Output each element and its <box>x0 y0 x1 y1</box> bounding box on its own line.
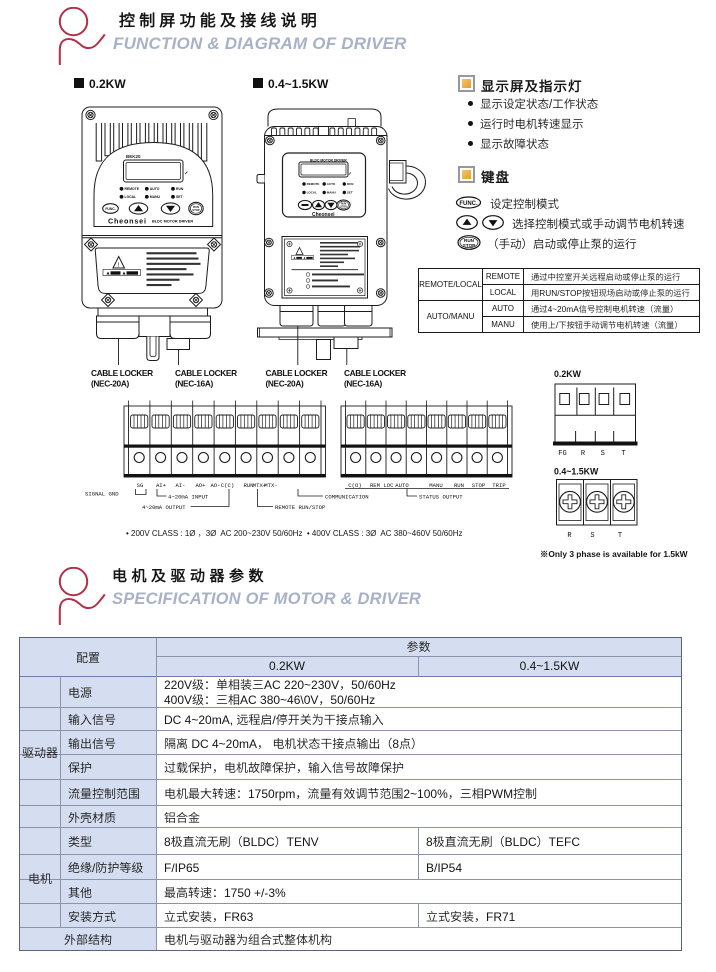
svg-text:CABLE LOCKER: CABLE LOCKER <box>344 368 406 378</box>
svg-text:AUTO: AUTO <box>150 187 160 191</box>
svg-text:MTX-: MTX- <box>264 482 277 489</box>
svg-text:CABLE LOCKER: CABLE LOCKER <box>91 368 153 378</box>
svg-text:LOCAL: LOCAL <box>307 191 317 195</box>
svg-text:AUTO: AUTO <box>395 482 409 489</box>
svg-text:R: R <box>567 532 572 540</box>
svg-text:CABLE LOCKER: CABLE LOCKER <box>266 368 328 378</box>
svg-text:STOP: STOP <box>192 208 200 212</box>
svg-text:SIGNAL GND: SIGNAL GND <box>85 491 119 498</box>
svg-text:(NEC-16A): (NEC-16A) <box>175 379 213 389</box>
svg-text:LOC: LOC <box>383 482 394 489</box>
svg-text:AUTO: AUTO <box>327 182 336 186</box>
svg-text:AI+: AI+ <box>156 482 167 489</box>
svg-text:FG: FG <box>558 450 566 458</box>
svg-text:STOP: STOP <box>340 205 347 208</box>
svg-text:RUN: RUN <box>176 187 184 191</box>
svg-text:REMOTE: REMOTE <box>307 182 320 186</box>
svg-text:COMMUNICATION: COMMUNICATION <box>325 493 369 500</box>
svg-text:SET: SET <box>176 195 184 199</box>
svg-text:C(O): C(O) <box>348 482 361 489</box>
svg-text:BLDC MOTOR DRIVER: BLDC MOTOR DRIVER <box>152 220 193 224</box>
svg-text:AO-: AO- <box>210 482 220 489</box>
svg-text:AO+: AO+ <box>195 482 206 489</box>
svg-text:AI-: AI- <box>175 482 185 489</box>
svg-text:STATUS OUTPUT: STATUS OUTPUT <box>419 493 463 500</box>
svg-text:MANU: MANU <box>327 191 336 195</box>
svg-text:4~20mA INPUT: 4~20mA INPUT <box>168 493 209 500</box>
svg-text:REMOTE: REMOTE <box>125 187 140 191</box>
svg-text:TRIP: TRIP <box>492 482 506 489</box>
svg-text:REM: REM <box>370 482 380 489</box>
svg-text:0.2KW: 0.2KW <box>554 369 582 379</box>
svg-text:4~20mA OUTPUT: 4~20mA OUTPUT <box>142 504 186 511</box>
svg-text:FUNC.: FUNC. <box>105 207 115 211</box>
svg-text:FUNC.: FUNC. <box>459 201 478 207</box>
svg-text:T: T <box>621 450 625 458</box>
svg-text:S: S <box>601 450 605 458</box>
svg-text:MANU: MANU <box>429 482 442 489</box>
svg-text:SG: SG <box>137 482 144 489</box>
svg-text:(NEC-20A): (NEC-20A) <box>266 379 304 389</box>
svg-text:S: S <box>590 532 594 540</box>
svg-text:REMOTE RUN/STOP: REMOTE RUN/STOP <box>275 504 326 511</box>
svg-text:0.4~1.5KW: 0.4~1.5KW <box>554 467 599 477</box>
svg-text:R: R <box>581 450 586 458</box>
svg-text:STOP: STOP <box>463 243 475 248</box>
svg-text:RUN: RUN <box>454 482 464 489</box>
svg-text:(NEC-20A): (NEC-20A) <box>91 379 129 389</box>
svg-text:RUN: RUN <box>347 182 354 186</box>
svg-text:Cheonsei: Cheonsei <box>312 212 335 218</box>
svg-text:(NEC-16A): (NEC-16A) <box>344 379 382 389</box>
svg-text:CABLE LOCKER: CABLE LOCKER <box>175 368 237 378</box>
svg-text:SET: SET <box>347 191 353 195</box>
svg-text:MANU: MANU <box>150 195 161 199</box>
svg-text:BEK20: BEK20 <box>126 154 141 159</box>
svg-text:STOP: STOP <box>472 482 486 489</box>
svg-text:C(C): C(C) <box>221 482 234 489</box>
svg-text:T: T <box>618 532 622 540</box>
svg-text:Cheonsei: Cheonsei <box>108 217 147 226</box>
svg-text:LOCAL: LOCAL <box>125 195 137 199</box>
